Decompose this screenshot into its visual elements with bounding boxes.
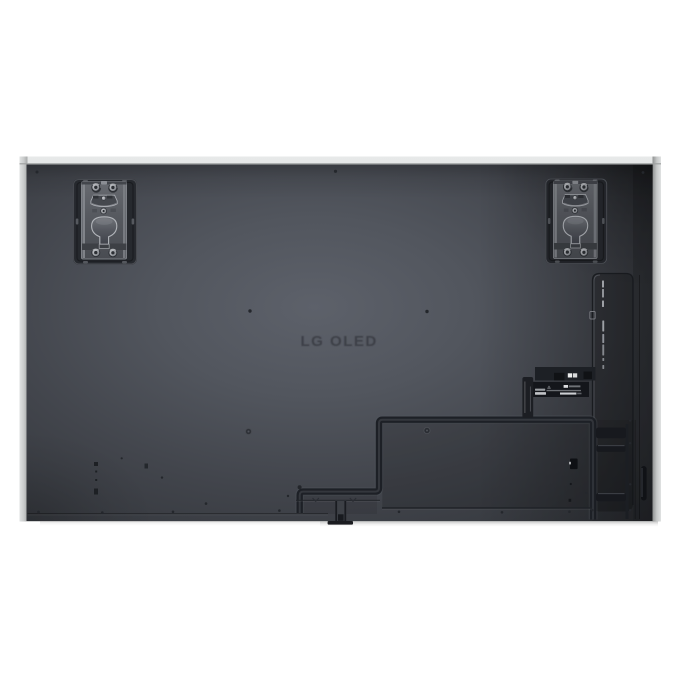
svg-text:LG OLED: LG OLED xyxy=(301,333,378,350)
